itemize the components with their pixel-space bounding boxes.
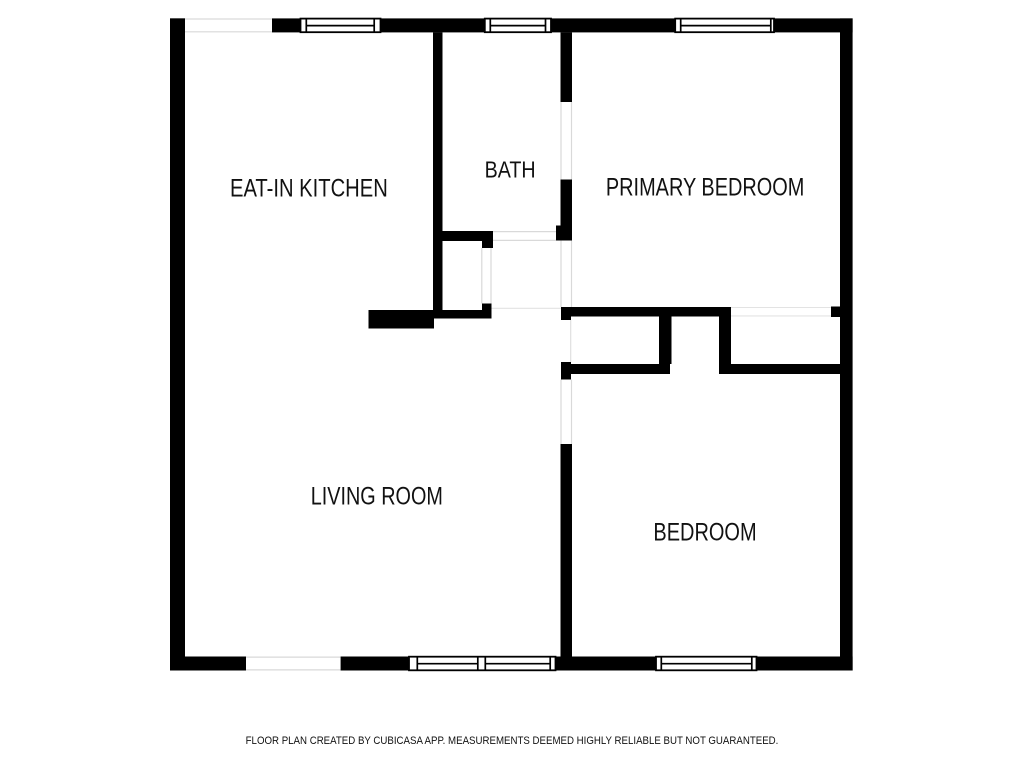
svg-text:FLOOR PLAN CREATED BY CUBICASA: FLOOR PLAN CREATED BY CUBICASA APP. MEAS… — [246, 735, 779, 747]
svg-text:LIVING ROOM: LIVING ROOM — [311, 482, 443, 510]
svg-text:BEDROOM: BEDROOM — [653, 519, 756, 547]
svg-text:EAT-IN KITCHEN: EAT-IN KITCHEN — [230, 175, 388, 203]
svg-text:PRIMARY BEDROOM: PRIMARY BEDROOM — [606, 173, 804, 201]
svg-text:BATH: BATH — [485, 157, 536, 183]
